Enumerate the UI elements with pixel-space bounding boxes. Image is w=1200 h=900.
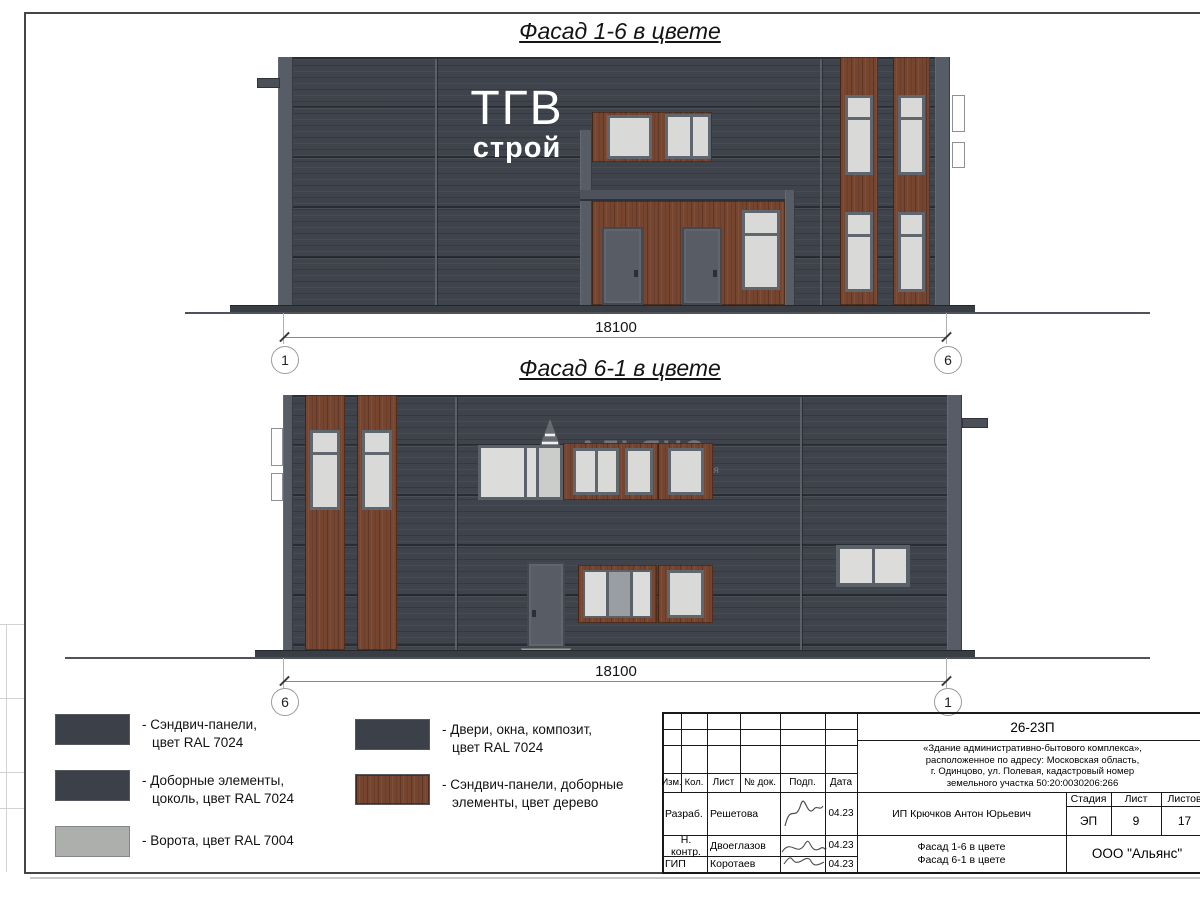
wood-panel bbox=[563, 443, 658, 500]
bay-trim-right bbox=[785, 190, 795, 305]
tb-sheets-value: 17 bbox=[1161, 806, 1200, 835]
gutter-outlet bbox=[962, 418, 988, 428]
window-pane bbox=[609, 572, 630, 616]
building-logo: ТГВ строй bbox=[457, 85, 577, 163]
facade-1-6-drawing: ТГВ строй bbox=[230, 57, 975, 317]
tb-col-doc: № док. bbox=[740, 773, 780, 792]
tb-description-line: г. Одинцово, ул. Полевая, кадастровый но… bbox=[857, 766, 1200, 778]
tb-row3-name: Коротаев bbox=[707, 856, 780, 872]
extension-line bbox=[946, 658, 947, 688]
tb-content-line: Фасад 6-1 в цвете bbox=[917, 854, 1005, 867]
legend-label-line: цвет RAL 7024 bbox=[152, 735, 243, 750]
window-transom bbox=[848, 234, 870, 237]
window-pane bbox=[527, 448, 536, 497]
window bbox=[625, 448, 653, 495]
window-pane bbox=[633, 572, 650, 616]
window bbox=[845, 95, 873, 175]
extension-line bbox=[946, 313, 947, 344]
window bbox=[667, 570, 704, 618]
window-pane bbox=[539, 448, 560, 497]
axis-marker-1: 1 bbox=[271, 346, 299, 374]
legend-swatch-doors-windows bbox=[355, 719, 430, 750]
dimension-value: 18100 bbox=[560, 663, 672, 680]
door-handle bbox=[532, 610, 536, 617]
tb-border bbox=[662, 872, 1200, 874]
window bbox=[898, 212, 925, 292]
window-transom bbox=[365, 452, 389, 455]
tb-row1-name: Решетова bbox=[707, 792, 780, 835]
window-pane bbox=[840, 549, 872, 583]
margin-line bbox=[0, 808, 24, 809]
legend-label: - Двери, окна, композит, цвет RAL 7024 bbox=[442, 721, 592, 757]
corner-trim-right bbox=[947, 395, 962, 650]
tb-sheet-content: Фасад 1-6 в цвете Фасад 6-1 в цвете bbox=[857, 835, 1066, 872]
wood-panel bbox=[578, 565, 657, 623]
facade-6-1-drawing: АЛЬЯНС строительная компания bbox=[255, 395, 995, 665]
facade-6-1-title: Фасад 6-1 в цвете bbox=[400, 355, 840, 382]
tb-col-kol: Кол. bbox=[681, 773, 707, 792]
dimension-value: 18100 bbox=[560, 319, 672, 336]
window bbox=[845, 212, 873, 292]
window bbox=[742, 210, 780, 290]
tb-project-description: «Здание административно-бытового комплек… bbox=[857, 743, 1200, 789]
margin-line bbox=[0, 624, 24, 625]
corner-trim-left bbox=[278, 57, 293, 305]
axis-marker-6: 6 bbox=[271, 688, 299, 716]
legend-label: - Сэндвич-панели, доборные элементы, цве… bbox=[442, 776, 624, 812]
window bbox=[362, 430, 392, 510]
ground-line bbox=[185, 312, 1150, 314]
tb-line bbox=[857, 740, 1200, 741]
corner-trim-right bbox=[935, 57, 950, 305]
entrance-door bbox=[527, 562, 565, 648]
legend-label-line: - Ворота, цвет RAL 7004 bbox=[142, 833, 294, 848]
legend-swatch-sandwich-panels bbox=[55, 714, 130, 745]
tb-doc-number: 26-23П bbox=[857, 714, 1200, 740]
legend-swatch-trim-elements bbox=[55, 770, 130, 801]
legend-label-line: цоколь, цвет RAL 7024 bbox=[152, 791, 294, 806]
legend-label-line: - Двери, окна, композит, bbox=[442, 722, 592, 737]
gutter-outlet bbox=[257, 78, 280, 88]
legend-label-line: - Сэндвич-панели, доборные bbox=[442, 777, 624, 792]
legend-label: - Доборные элементы, цоколь, цвет RAL 70… bbox=[142, 772, 294, 808]
tb-row2-role: Н. контр. bbox=[662, 835, 707, 856]
tb-sheet-value: 9 bbox=[1111, 806, 1161, 835]
window-transom bbox=[313, 452, 337, 455]
plinth-base bbox=[230, 305, 975, 312]
legend-label-line: - Сэндвич-панели, bbox=[142, 717, 257, 732]
wood-panel bbox=[658, 565, 713, 623]
tb-stage-value: ЭП bbox=[1066, 806, 1111, 835]
tb-col-list: Лист bbox=[707, 773, 740, 792]
legend-label-line: - Доборные элементы, bbox=[142, 773, 284, 788]
tb-line bbox=[662, 745, 857, 746]
window bbox=[668, 448, 704, 495]
window bbox=[898, 95, 925, 175]
tb-row3-role: ГИП bbox=[662, 856, 707, 872]
drawing-sheet: Фасад 1-6 в цвете ТГВ строй bbox=[0, 0, 1200, 900]
dimension-line bbox=[284, 337, 947, 338]
window-transom bbox=[901, 117, 922, 120]
window-mullion bbox=[595, 451, 598, 492]
window bbox=[310, 430, 340, 510]
tb-col-izm: Изм. bbox=[662, 773, 681, 792]
window-transom bbox=[848, 117, 870, 120]
corner-trim-left bbox=[283, 395, 293, 650]
signature bbox=[781, 794, 824, 834]
tb-content-line: Фасад 1-6 в цвете bbox=[917, 841, 1005, 854]
axis-marker-6: 6 bbox=[934, 346, 962, 374]
signature bbox=[779, 836, 827, 872]
door-handle bbox=[634, 270, 638, 277]
window-pane bbox=[585, 572, 606, 616]
tb-row2-name: Двоеглазов bbox=[707, 835, 780, 856]
door-handle bbox=[713, 270, 717, 277]
logo-line-1: ТГВ bbox=[457, 85, 577, 133]
entrance-canopy bbox=[580, 190, 795, 201]
window bbox=[607, 115, 652, 159]
window-band bbox=[583, 570, 652, 618]
title-block: Изм. Кол. Лист № док. Подп. Дата 26-23П … bbox=[660, 710, 1200, 880]
legend-label-line: цвет RAL 7024 bbox=[452, 740, 543, 755]
tb-company: ООО "Альянс" bbox=[1066, 835, 1200, 872]
legend-label-line: элементы, цвет дерево bbox=[452, 795, 598, 810]
small-window bbox=[836, 545, 910, 587]
window-band bbox=[478, 445, 563, 500]
margin-line bbox=[0, 698, 24, 699]
frame-left bbox=[24, 12, 26, 874]
dimension-line bbox=[284, 681, 947, 682]
window-transom bbox=[901, 234, 922, 237]
facade-1-6-title: Фасад 1-6 в цвете bbox=[400, 18, 840, 45]
plinth-base bbox=[255, 650, 975, 657]
tb-row1-role: Разраб. bbox=[662, 792, 707, 835]
legend-label: - Сэндвич-панели, цвет RAL 7024 bbox=[142, 716, 257, 752]
window bbox=[665, 114, 711, 159]
window-pane bbox=[875, 549, 907, 583]
panel-seam bbox=[435, 59, 437, 305]
panel-seam bbox=[820, 59, 822, 305]
window bbox=[573, 448, 619, 495]
downpipe-bracket bbox=[271, 473, 283, 501]
tb-col-podp: Подп. bbox=[780, 773, 825, 792]
legend-swatch-gates bbox=[55, 826, 130, 857]
tb-description-line: «Здание административно-бытового комплек… bbox=[857, 743, 1200, 755]
downpipe-bracket bbox=[952, 95, 965, 132]
panel-seam bbox=[800, 397, 802, 650]
tb-description-line: земельного участка 50:20:0030206:266 bbox=[857, 778, 1200, 790]
logo-line-2: строй bbox=[457, 133, 577, 163]
tb-sheets-label: Листов bbox=[1161, 792, 1200, 806]
panel-seam bbox=[455, 397, 457, 650]
entrance-door bbox=[602, 227, 643, 305]
entrance-door bbox=[682, 227, 722, 305]
tb-col-data: Дата bbox=[825, 773, 857, 792]
tb-description-line: расположенное по адресу: Московская обла… bbox=[857, 755, 1200, 767]
tb-line bbox=[662, 729, 857, 730]
window-pane bbox=[481, 448, 524, 497]
margin-line bbox=[0, 772, 24, 773]
tb-row1-date: 04.23 bbox=[825, 792, 857, 835]
tb-sheet-label: Лист bbox=[1111, 792, 1161, 806]
ground-line bbox=[65, 657, 1150, 659]
tb-row2-date: 04.23 bbox=[825, 835, 857, 856]
tb-stage-label: Стадия bbox=[1066, 792, 1111, 806]
window-transom bbox=[745, 233, 777, 236]
frame-top bbox=[24, 12, 1200, 14]
bay-trim-left bbox=[580, 130, 592, 305]
legend-label: - Ворота, цвет RAL 7004 bbox=[142, 832, 294, 850]
downpipe-bracket bbox=[271, 428, 283, 466]
downpipe-bracket bbox=[952, 142, 965, 168]
margin-line bbox=[6, 624, 7, 872]
wood-panel bbox=[658, 443, 713, 500]
legend-swatch-wood-panels bbox=[355, 774, 430, 805]
tb-client: ИП Крючков Антон Юрьевич bbox=[857, 792, 1066, 835]
tb-row3-date: 04.23 bbox=[825, 856, 857, 872]
window-mullion bbox=[690, 117, 693, 156]
